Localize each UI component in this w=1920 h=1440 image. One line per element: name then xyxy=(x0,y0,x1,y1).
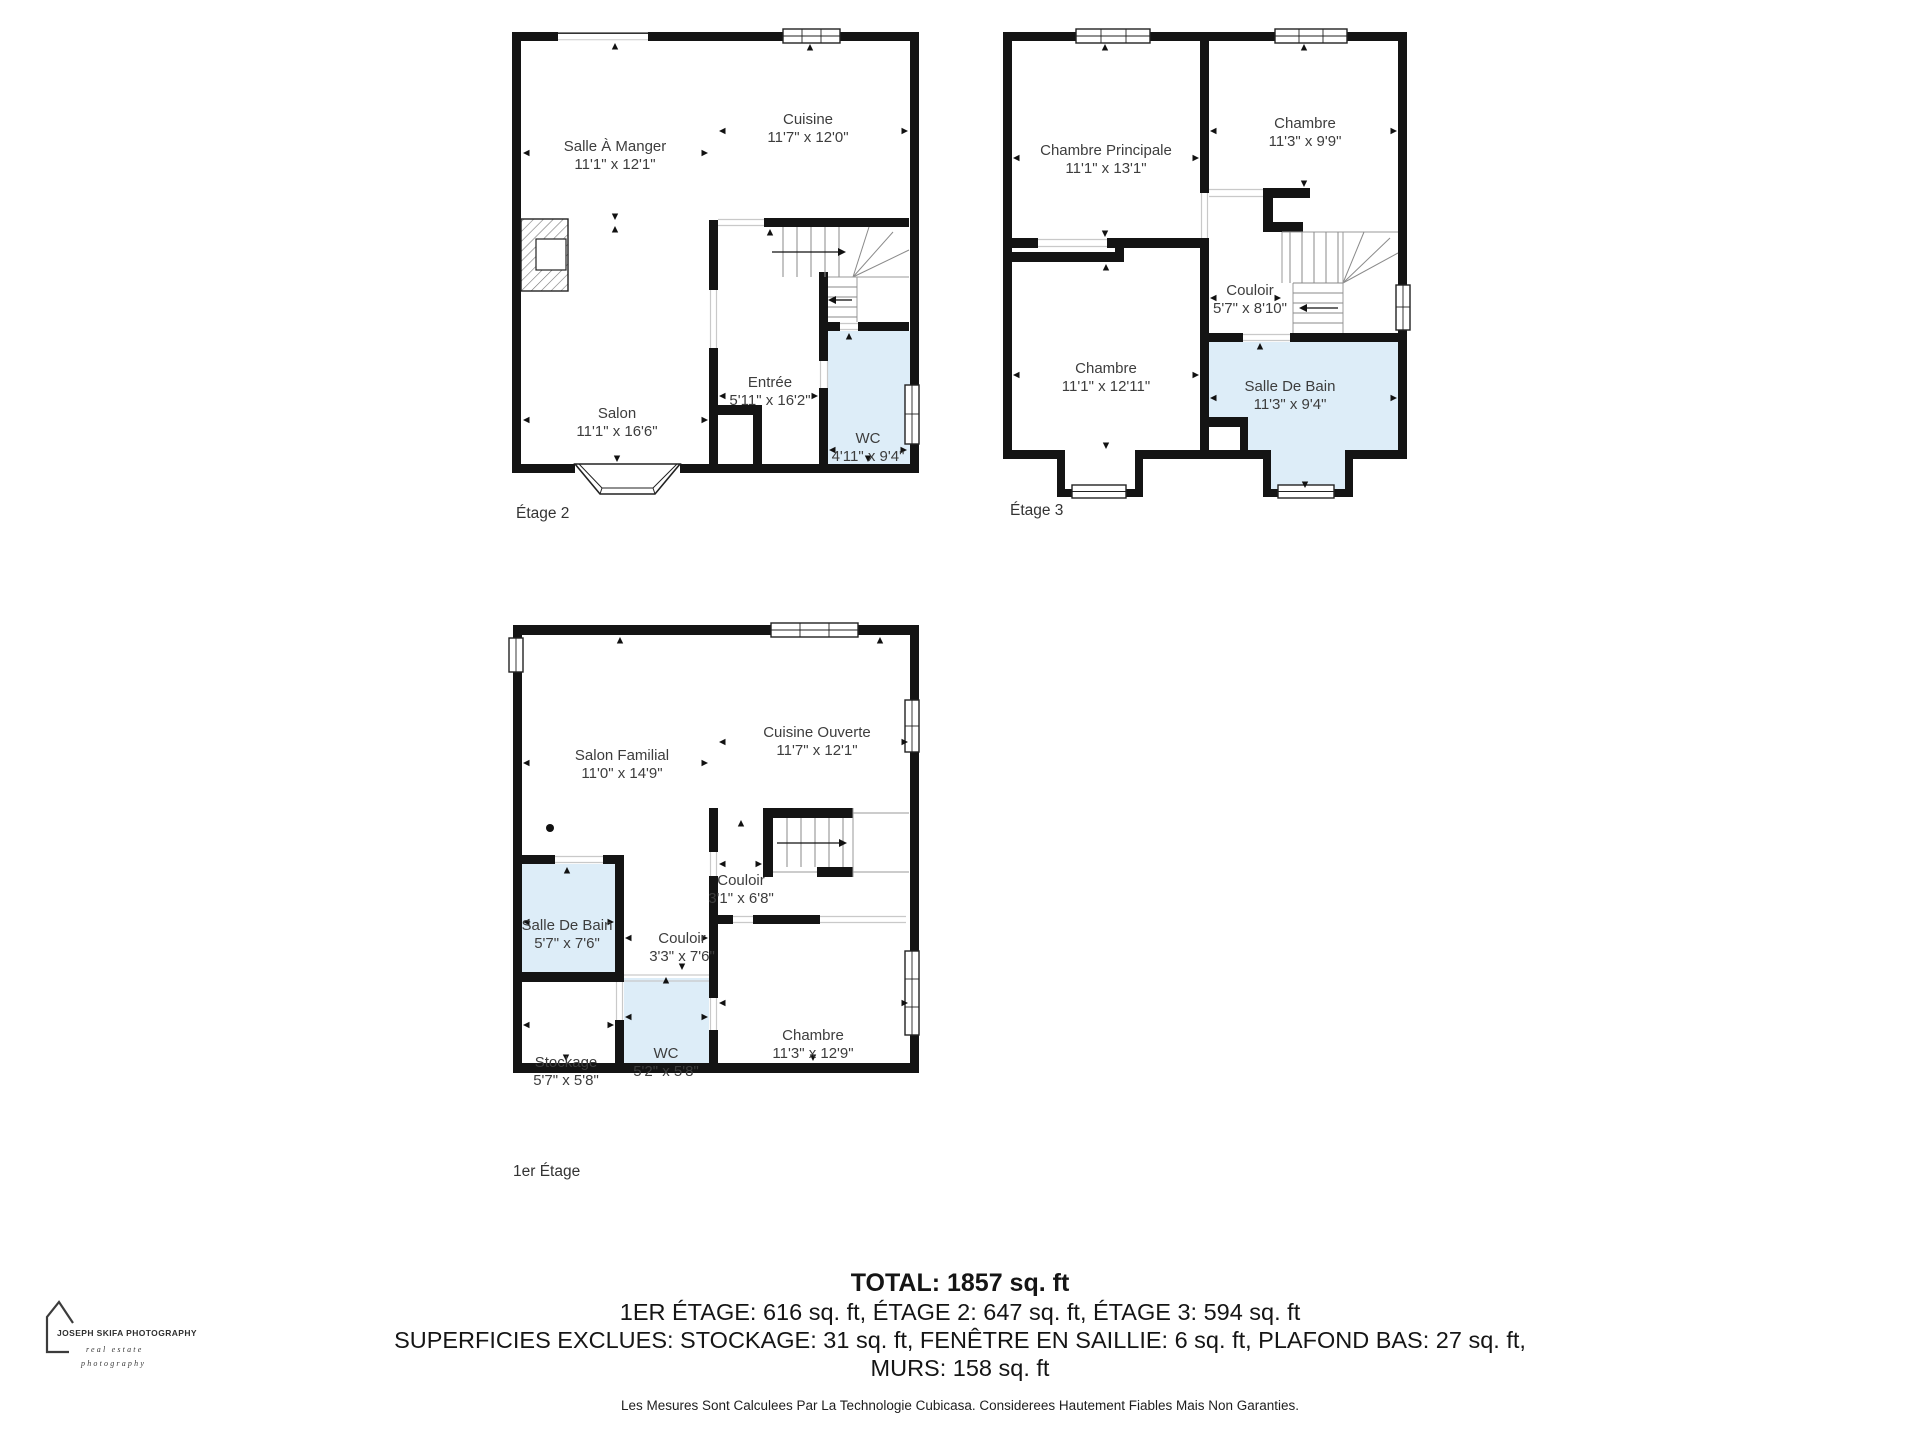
floor-tag-etage3: Étage 3 xyxy=(1010,502,1063,520)
room-label-salle-de-bain-etage3: Salle De Bain11'3" x 9'4" xyxy=(1245,378,1336,414)
bay-window xyxy=(575,464,680,494)
excluded-areas-2: MURS: 158 sq. ft xyxy=(0,1354,1920,1382)
room-label-chambre-bl: Chambre11'1" x 12'11" xyxy=(1062,360,1150,396)
stairs-etage2 xyxy=(783,227,909,322)
floor-tag-1er-etage: 1er Étage xyxy=(513,1163,580,1181)
plan-etage-3 xyxy=(1003,29,1410,498)
room-label-couloir-etage3: Couloir5'7" x 8'10" xyxy=(1213,282,1287,318)
room-label-salon: Salon11'1" x 16'6" xyxy=(576,405,657,441)
plan-etage-2 xyxy=(512,29,919,494)
room-label-chambre-tr: Chambre11'3" x 9'9" xyxy=(1269,115,1342,151)
salle-de-bain-bay-fill xyxy=(1271,450,1345,489)
room-label-entree: Entrée5'11" x 16'2" xyxy=(729,374,810,410)
logo-brand-text: JOSEPH SKIFA PHOTOGRAPHY xyxy=(57,1328,197,1338)
room-label-salle-a-manger: Salle À Manger11'1" x 12'1" xyxy=(564,138,667,174)
total-area: TOTAL: 1857 sq. ft xyxy=(0,1268,1920,1298)
stairs-etage3-arrows xyxy=(1299,304,1338,312)
floor-areas: 1ER ÉTAGE: 616 sq. ft, ÉTAGE 2: 647 sq. … xyxy=(0,1298,1920,1326)
room-label-cuisine-ouverte: Cuisine Ouverte11'7" x 12'1" xyxy=(763,724,871,760)
room-label-chambre-1er: Chambre11'3" x 12'9" xyxy=(772,1027,853,1063)
closet-nook xyxy=(1209,427,1240,450)
excluded-areas: SUPERFICIES EXCLUES: STOCKAGE: 31 sq. ft… xyxy=(0,1326,1920,1354)
floor-tag-etage2: Étage 2 xyxy=(516,505,569,523)
room-label-salle-de-bain-1er: Salle De Bain5'7" x 7'6" xyxy=(522,917,613,953)
floor-plan-drawing xyxy=(0,0,1920,1440)
column-dot xyxy=(546,824,554,832)
room-label-couloir-a: Couloir3'1" x 6'8" xyxy=(708,872,774,908)
room-label-stockage: Stockage5'7" x 5'8" xyxy=(533,1054,599,1090)
stairs-etage3 xyxy=(1282,232,1398,333)
stairs-etage2-arrows xyxy=(772,248,852,304)
floor-plan-page: Salle À Manger11'1" x 12'1" Cuisine11'7"… xyxy=(0,0,1920,1440)
room-label-wc-etage2: WC4'11" x 9'4" xyxy=(832,430,905,466)
room-label-wc-1er: WC5'2" x 5'8" xyxy=(633,1045,699,1081)
area-summary: TOTAL: 1857 sq. ft 1ER ÉTAGE: 616 sq. ft… xyxy=(0,1268,1920,1382)
logo-tagline-2: photography xyxy=(81,1359,146,1368)
room-label-chambre-principale: Chambre Principale11'1" x 13'1" xyxy=(1040,142,1172,178)
logo-tagline-1: real estate xyxy=(86,1345,143,1354)
fireplace xyxy=(521,219,568,291)
room-label-couloir-b: Couloir3'3" x 7'6" xyxy=(649,930,715,966)
disclaimer: Les Mesures Sont Calculees Par La Techno… xyxy=(0,1398,1920,1413)
room-label-cuisine: Cuisine11'7" x 12'0" xyxy=(767,111,848,147)
room-label-salon-familial: Salon Familial11'0" x 14'9" xyxy=(575,747,669,783)
plan-1er-etage xyxy=(509,623,919,1073)
